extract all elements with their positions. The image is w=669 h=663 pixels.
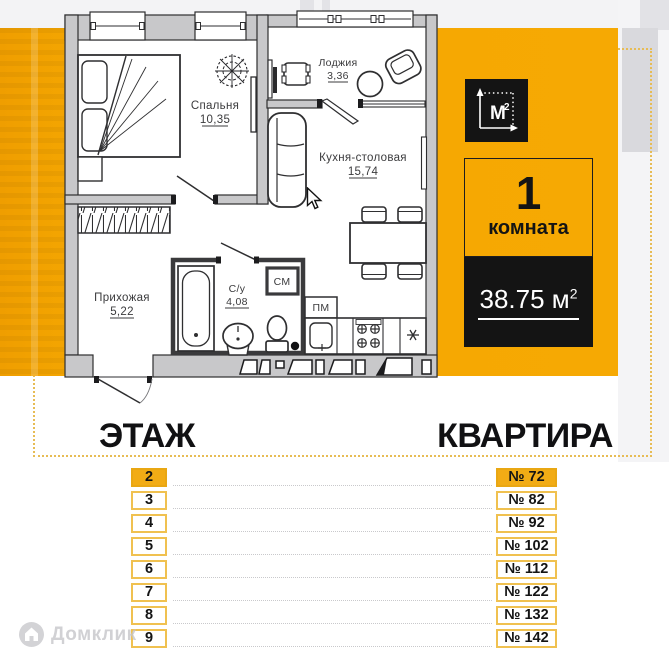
- facade-windows: [240, 358, 431, 375]
- floor-cell[interactable]: 7: [131, 583, 167, 602]
- washing-machine-label: СМ: [274, 276, 291, 288]
- floor-cell[interactable]: 4: [131, 514, 167, 533]
- area-sup: 2: [570, 285, 578, 301]
- table-row: 3 № 82: [0, 491, 669, 511]
- dimension-arrows-icon: М 2: [465, 79, 528, 142]
- apartment-header: КВАРТИРА: [425, 417, 625, 456]
- table-row: 7 № 122: [0, 583, 669, 603]
- background-building-silhouette: [640, 0, 669, 30]
- dishwasher-label: ПМ: [313, 302, 330, 314]
- apartment-cell[interactable]: № 82: [496, 491, 557, 510]
- round-table: [358, 72, 383, 97]
- table-row: 2 № 72: [0, 468, 669, 488]
- floor-cell[interactable]: 5: [131, 537, 167, 556]
- stove-panel: [356, 320, 381, 325]
- entrance-door: [94, 376, 152, 403]
- floor-cell[interactable]: 3: [131, 491, 167, 510]
- kitchen-sink: [310, 323, 332, 348]
- room-area-bathroom: 4,08: [226, 296, 248, 308]
- room-area-bedroom: 10,35: [200, 114, 230, 126]
- plant: [215, 54, 249, 88]
- apartment-cell[interactable]: № 132: [496, 606, 557, 625]
- leader-line: [173, 554, 492, 555]
- table-row: 6 № 112: [0, 560, 669, 580]
- leader-line: [173, 508, 492, 509]
- bathroom-sink: [223, 324, 253, 356]
- room-label-loggia: Лоджия: [318, 57, 357, 69]
- table-row: 5 № 102: [0, 537, 669, 557]
- floor-plan: Спальня 10,35 Лоджия 3,36 Кухня-столовая…: [60, 5, 460, 405]
- apartment-cell[interactable]: № 102: [496, 537, 557, 556]
- room-area-loggia: 3,36: [327, 70, 349, 82]
- backdrop-texture: [31, 28, 38, 376]
- room-label-bedroom: Спальня: [191, 100, 239, 112]
- room-area-kitchen: 15,74: [348, 166, 379, 178]
- apartment-cell[interactable]: № 72: [496, 468, 557, 487]
- apartment-cell[interactable]: № 142: [496, 629, 557, 648]
- table-row: 4 № 92: [0, 514, 669, 534]
- rooms-count-label: комната: [465, 217, 592, 240]
- room-label-kitchen: Кухня-столовая: [319, 152, 407, 164]
- svg-text:2: 2: [504, 102, 510, 113]
- leader-line: [173, 646, 492, 647]
- apartment-cell[interactable]: № 92: [496, 514, 557, 533]
- room-area-hallway: 5,22: [110, 306, 134, 318]
- total-area-card: 38.75 м2: [464, 257, 593, 347]
- leader-line: [173, 577, 492, 578]
- desk-chair: [282, 63, 310, 85]
- watermark: Домклик: [18, 621, 137, 648]
- floor-cell[interactable]: 6: [131, 560, 167, 579]
- floor-header: ЭТАЖ: [57, 417, 237, 456]
- radiator: [422, 137, 427, 189]
- area-value: 38.75 м: [480, 284, 570, 314]
- domclick-logo-icon: [18, 621, 45, 648]
- kitchen-counter: [305, 318, 426, 354]
- apartment-cell[interactable]: № 112: [496, 560, 557, 579]
- screenshot-root: Спальня 10,35 Лоджия 3,36 Кухня-столовая…: [0, 0, 669, 663]
- leader-line: [173, 485, 492, 486]
- mirror: [251, 77, 256, 132]
- rooms-count-card: 1 комната: [464, 158, 593, 257]
- bathtub: [178, 266, 214, 351]
- rooms-count: 1: [465, 170, 592, 216]
- leader-line: [173, 531, 492, 532]
- m2-badge: М 2: [465, 79, 528, 142]
- room-label-hallway: Прихожая: [94, 292, 150, 304]
- dining-table: [350, 223, 426, 263]
- wardrobe: [78, 207, 170, 233]
- floor-cell[interactable]: 2: [131, 468, 167, 487]
- sofa: [268, 113, 306, 207]
- room-label-bathroom: С/у: [229, 283, 246, 295]
- leader-line: [173, 623, 492, 624]
- watermark-text: Домклик: [51, 624, 137, 646]
- leader-line: [173, 600, 492, 601]
- mouse-cursor: [306, 187, 326, 211]
- apartment-cell[interactable]: № 122: [496, 583, 557, 602]
